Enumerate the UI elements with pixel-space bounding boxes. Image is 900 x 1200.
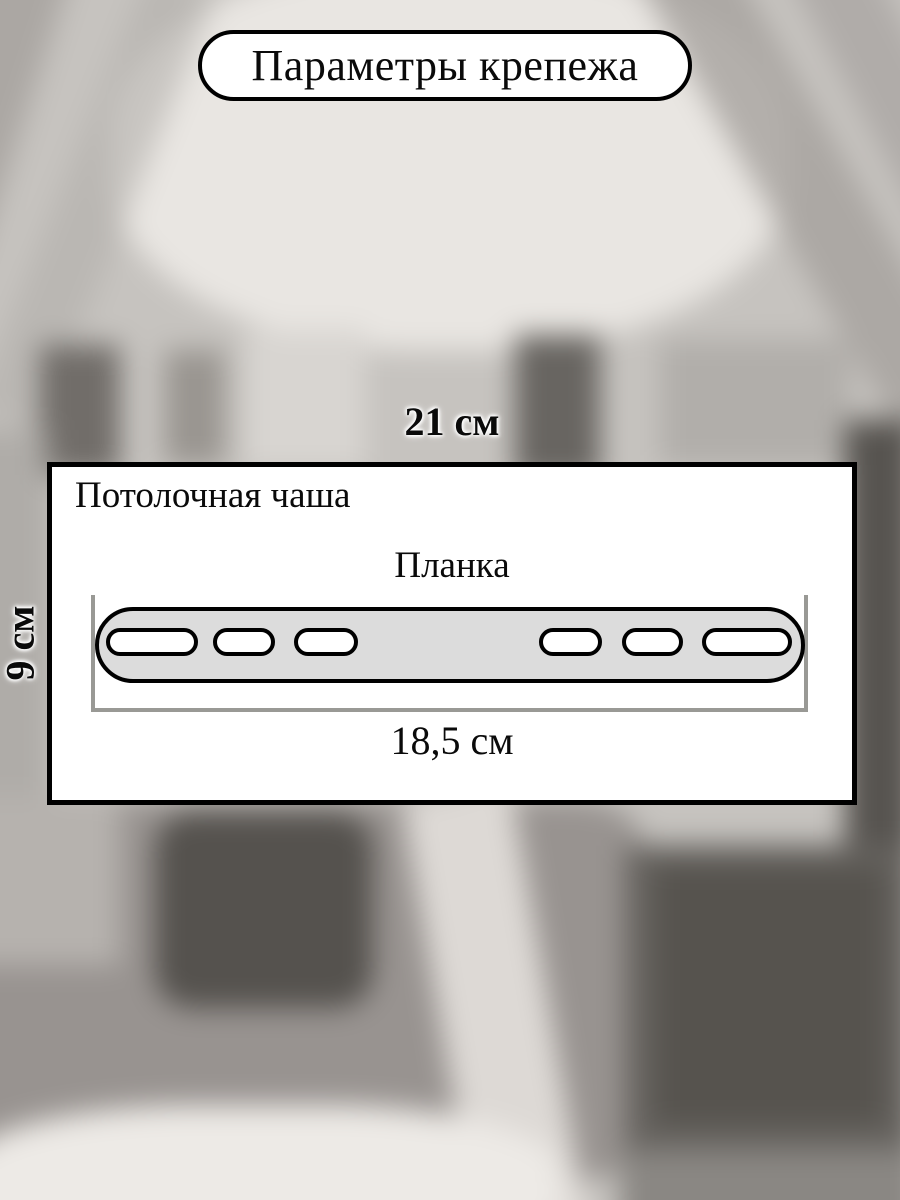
plank-hole [213, 628, 275, 656]
ceiling-cup-label: Потолочная чаша [75, 473, 350, 519]
page-title: Параметры крепежа [252, 40, 639, 91]
plank-hole [702, 628, 792, 656]
infographic-root: Параметры крепежа 21 см 9 см Потолочная … [0, 0, 900, 1200]
plank-hole [539, 628, 602, 656]
bg-blob-furniture [655, 865, 885, 1125]
title-badge: Параметры крепежа [198, 30, 692, 101]
bg-blob-floor [0, 795, 120, 965]
diagram-panel: Потолочная чаша Планка 18,5 см [47, 462, 857, 805]
plank-shape [95, 607, 805, 683]
dimension-height-label: 9 см [0, 606, 44, 681]
plank-hole [106, 628, 198, 656]
plank-label: Планка [52, 543, 852, 589]
bg-blob-furniture [155, 812, 373, 1008]
plank-hole [622, 628, 683, 656]
plank-width-label: 18,5 см [52, 717, 852, 765]
dimension-width-label: 21 см [47, 398, 857, 445]
bg-blob-floor [620, 1150, 900, 1200]
plank-hole [294, 628, 358, 656]
